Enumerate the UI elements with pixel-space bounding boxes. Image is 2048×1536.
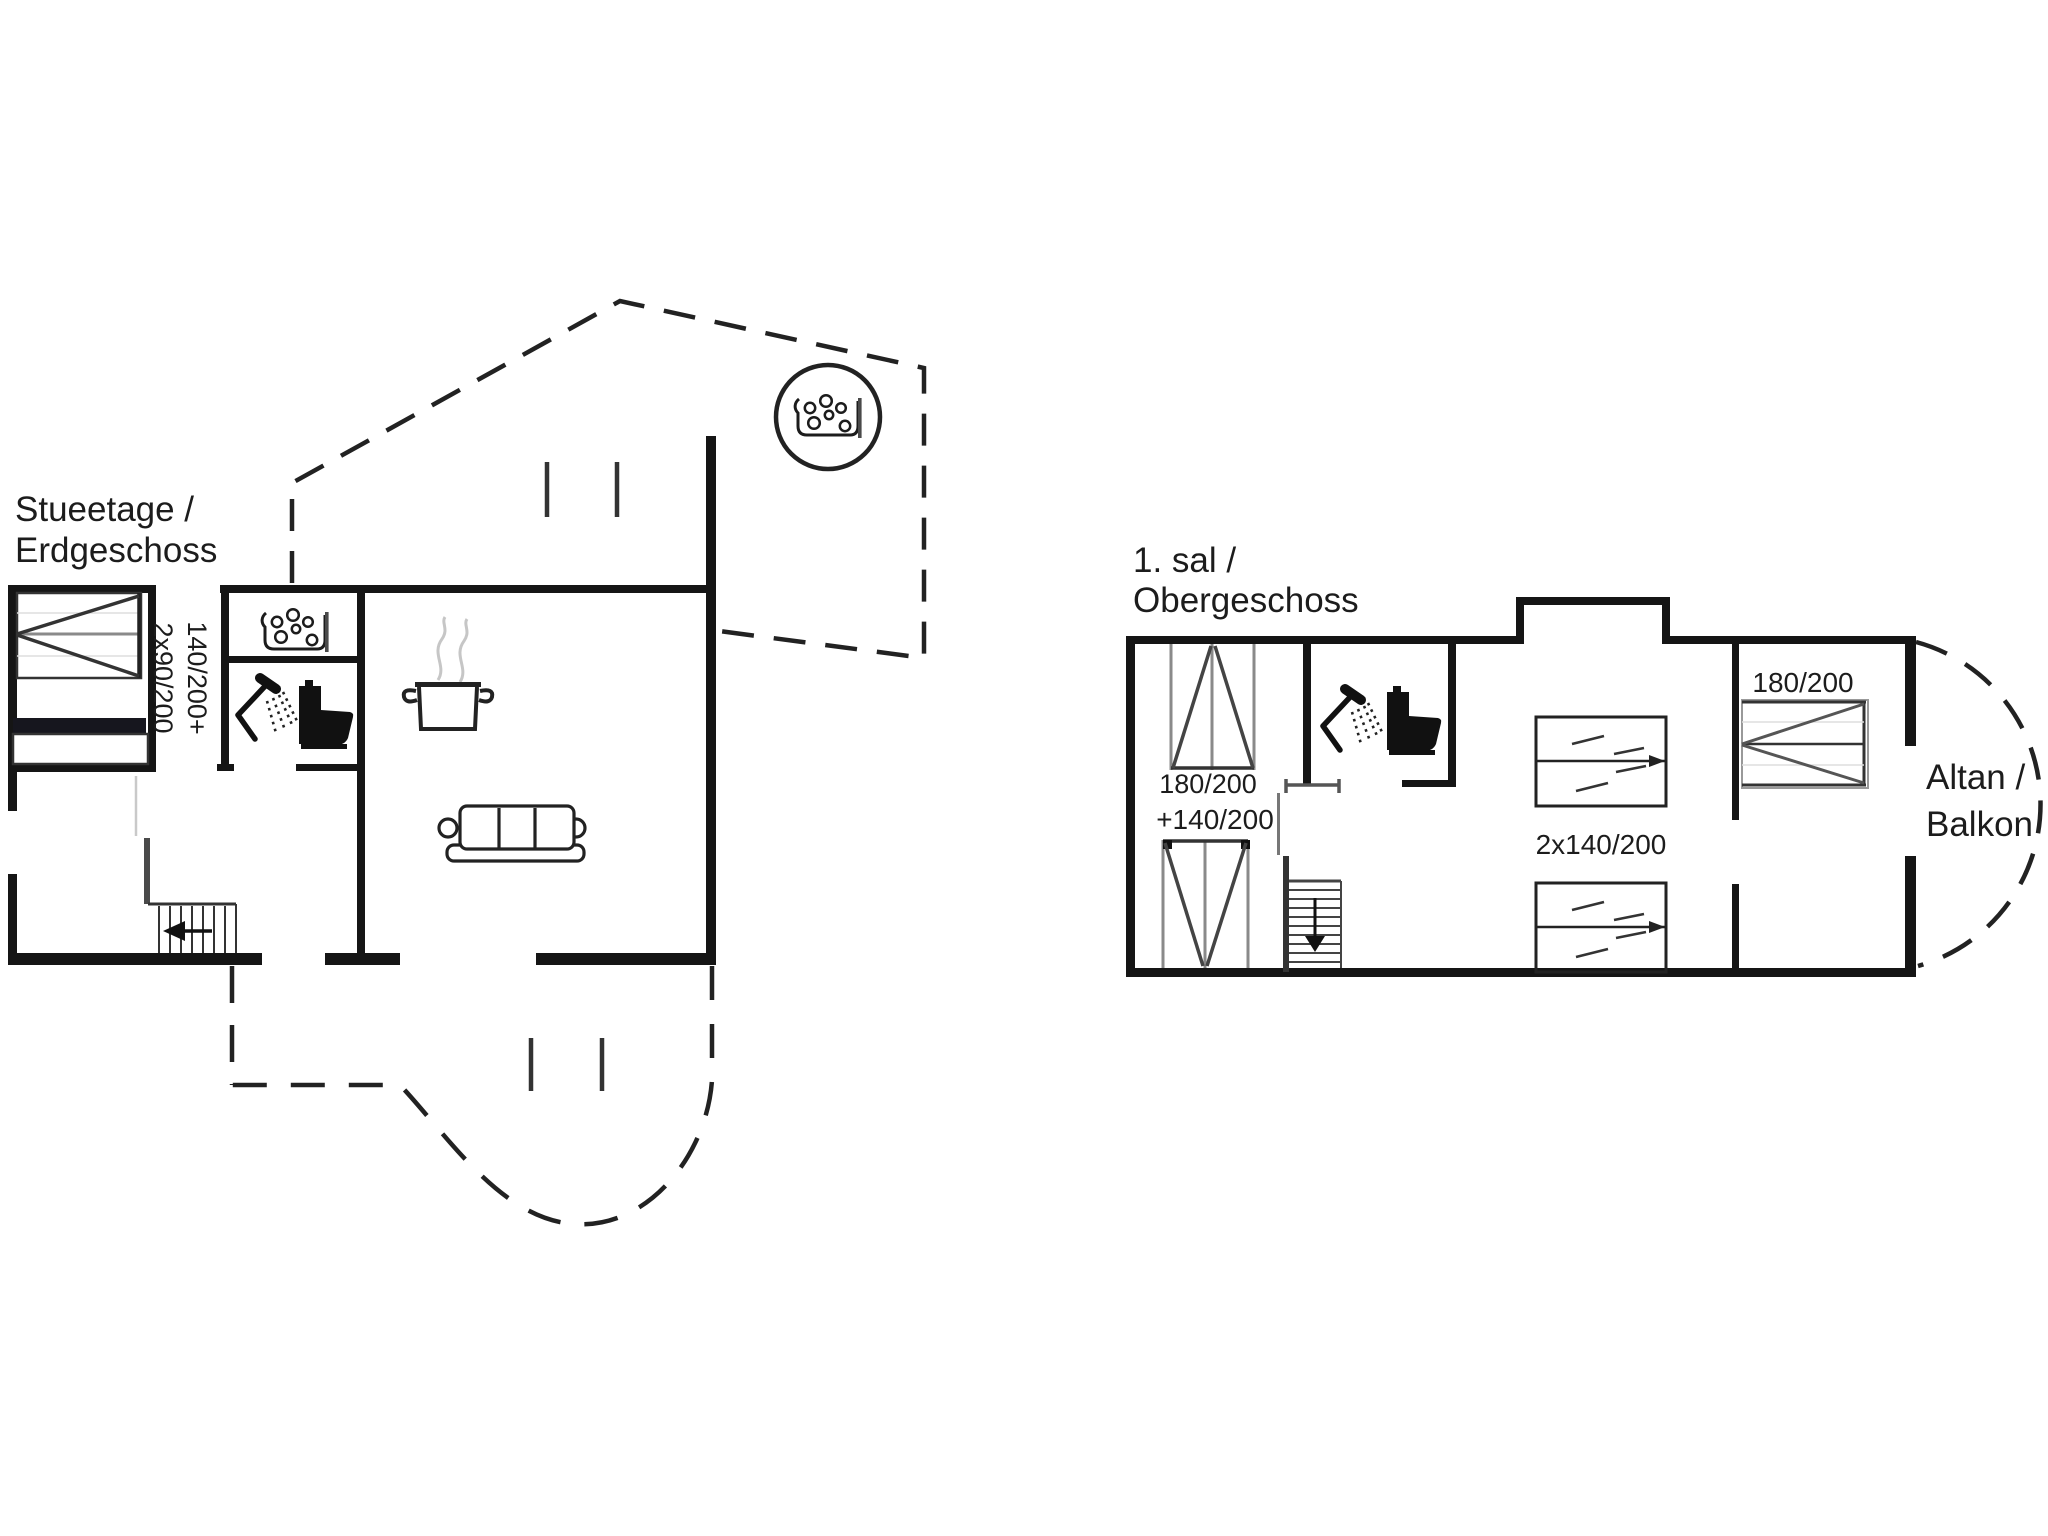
svg-text:Balkon: Balkon [1926,805,2033,844]
svg-text:2x140/200: 2x140/200 [1536,829,1667,860]
svg-text:140/200+: 140/200+ [182,621,212,734]
svg-text:1. sal /: 1. sal / [1133,541,1236,580]
svg-text:Altan /: Altan / [1926,758,2025,797]
svg-text:Erdgeschoss: Erdgeschoss [15,531,217,570]
svg-text:+140/200: +140/200 [1156,804,1274,835]
svg-text:Stueetage /: Stueetage / [15,490,194,529]
svg-text:Obergeschoss: Obergeschoss [1133,581,1359,620]
svg-text:180/200: 180/200 [1159,769,1257,799]
svg-text:2x90/200: 2x90/200 [148,622,178,733]
svg-text:180/200: 180/200 [1752,667,1853,698]
